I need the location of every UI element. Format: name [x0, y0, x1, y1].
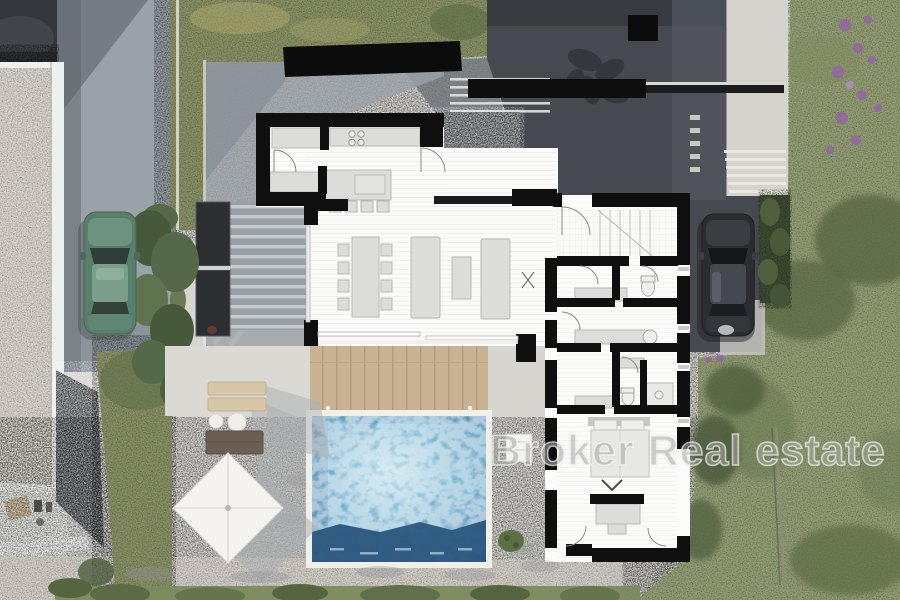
sofa: [481, 239, 510, 319]
tv-console: [590, 494, 644, 504]
neighbor-building: [0, 0, 57, 70]
dining-table: [352, 237, 379, 317]
desk-chair: [608, 524, 626, 534]
aerial-photo: Broker Real estate: [0, 0, 900, 600]
wooden-deck: [310, 340, 518, 412]
sofa: [411, 237, 440, 318]
curb-left: [176, 0, 179, 230]
bush: [498, 530, 524, 552]
shower-drain: [643, 330, 657, 344]
black-car: [697, 214, 758, 342]
bed: [588, 417, 650, 477]
coffee-table: [452, 257, 471, 299]
swimming-pool: [306, 410, 492, 568]
desk: [596, 504, 640, 524]
hedge-right: [758, 195, 790, 308]
sun-lounger: [208, 398, 266, 411]
glass-panel: [196, 202, 230, 266]
pantry-counter: [272, 128, 322, 148]
pouf: [228, 413, 246, 431]
site-plan-render: [0, 0, 900, 600]
storage-cabinet: [270, 172, 320, 192]
green-car: [78, 212, 140, 340]
neighbor-gravel-roof: [0, 62, 64, 496]
wardrobe: [575, 330, 647, 344]
pouf: [209, 414, 223, 428]
sun-lounger: [208, 382, 266, 395]
kitchen-counter: [330, 128, 434, 146]
